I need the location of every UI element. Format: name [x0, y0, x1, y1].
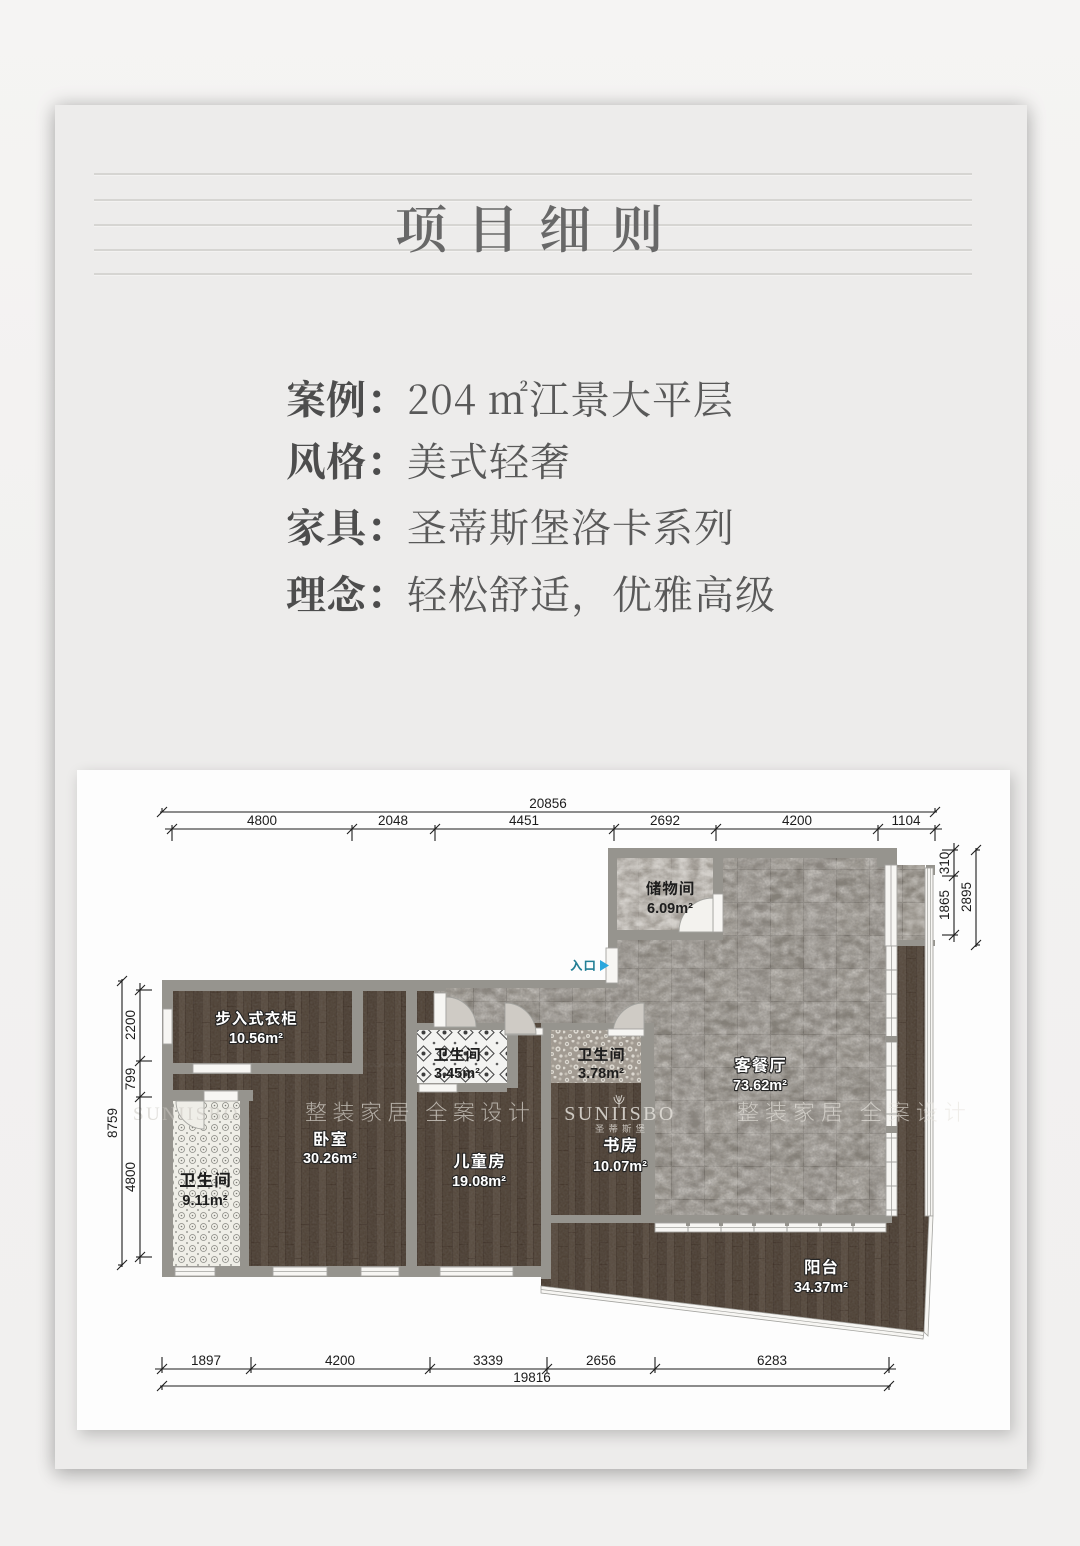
svg-text:SUNIISBO: SUNIISBO — [564, 1103, 675, 1125]
svg-text:10.07m²: 10.07m² — [593, 1159, 647, 1175]
svg-text:1865: 1865 — [937, 890, 952, 920]
svg-text:6283: 6283 — [757, 1353, 787, 1368]
svg-text:799: 799 — [123, 1068, 138, 1091]
svg-text:1104: 1104 — [891, 813, 921, 828]
svg-text:4800: 4800 — [247, 813, 277, 828]
svg-text:2895: 2895 — [959, 882, 974, 912]
svg-text:2200: 2200 — [123, 1010, 138, 1040]
svg-text:2692: 2692 — [650, 813, 680, 828]
svg-text:4200: 4200 — [782, 813, 812, 828]
svg-text:20856: 20856 — [529, 796, 567, 811]
svg-text:19.08m²: 19.08m² — [452, 1174, 506, 1190]
svg-text:10.56m²: 10.56m² — [229, 1031, 283, 1047]
svg-text:2048: 2048 — [378, 813, 408, 828]
svg-text:4800: 4800 — [123, 1162, 138, 1192]
svg-text:3.78m²: 3.78m² — [578, 1066, 624, 1082]
svg-text:4200: 4200 — [325, 1353, 355, 1368]
svg-text:19816: 19816 — [513, 1370, 551, 1385]
svg-text:9.11m²: 9.11m² — [182, 1193, 227, 1209]
svg-text:SUNIISBO: SUNIISBO — [133, 1104, 240, 1125]
svg-text:3339: 3339 — [473, 1353, 503, 1368]
svg-text:4451: 4451 — [509, 813, 539, 828]
svg-text:8759: 8759 — [105, 1108, 120, 1138]
svg-text:2656: 2656 — [586, 1353, 616, 1368]
svg-text:34.37m²: 34.37m² — [794, 1280, 848, 1296]
svg-text:310: 310 — [937, 852, 952, 875]
svg-text:30.26m²: 30.26m² — [303, 1151, 357, 1167]
svg-text:6.09m²: 6.09m² — [647, 901, 693, 917]
svg-text:1897: 1897 — [191, 1353, 221, 1368]
svg-text:3.45m²: 3.45m² — [434, 1066, 480, 1082]
svg-text:73.62m²: 73.62m² — [733, 1078, 787, 1094]
